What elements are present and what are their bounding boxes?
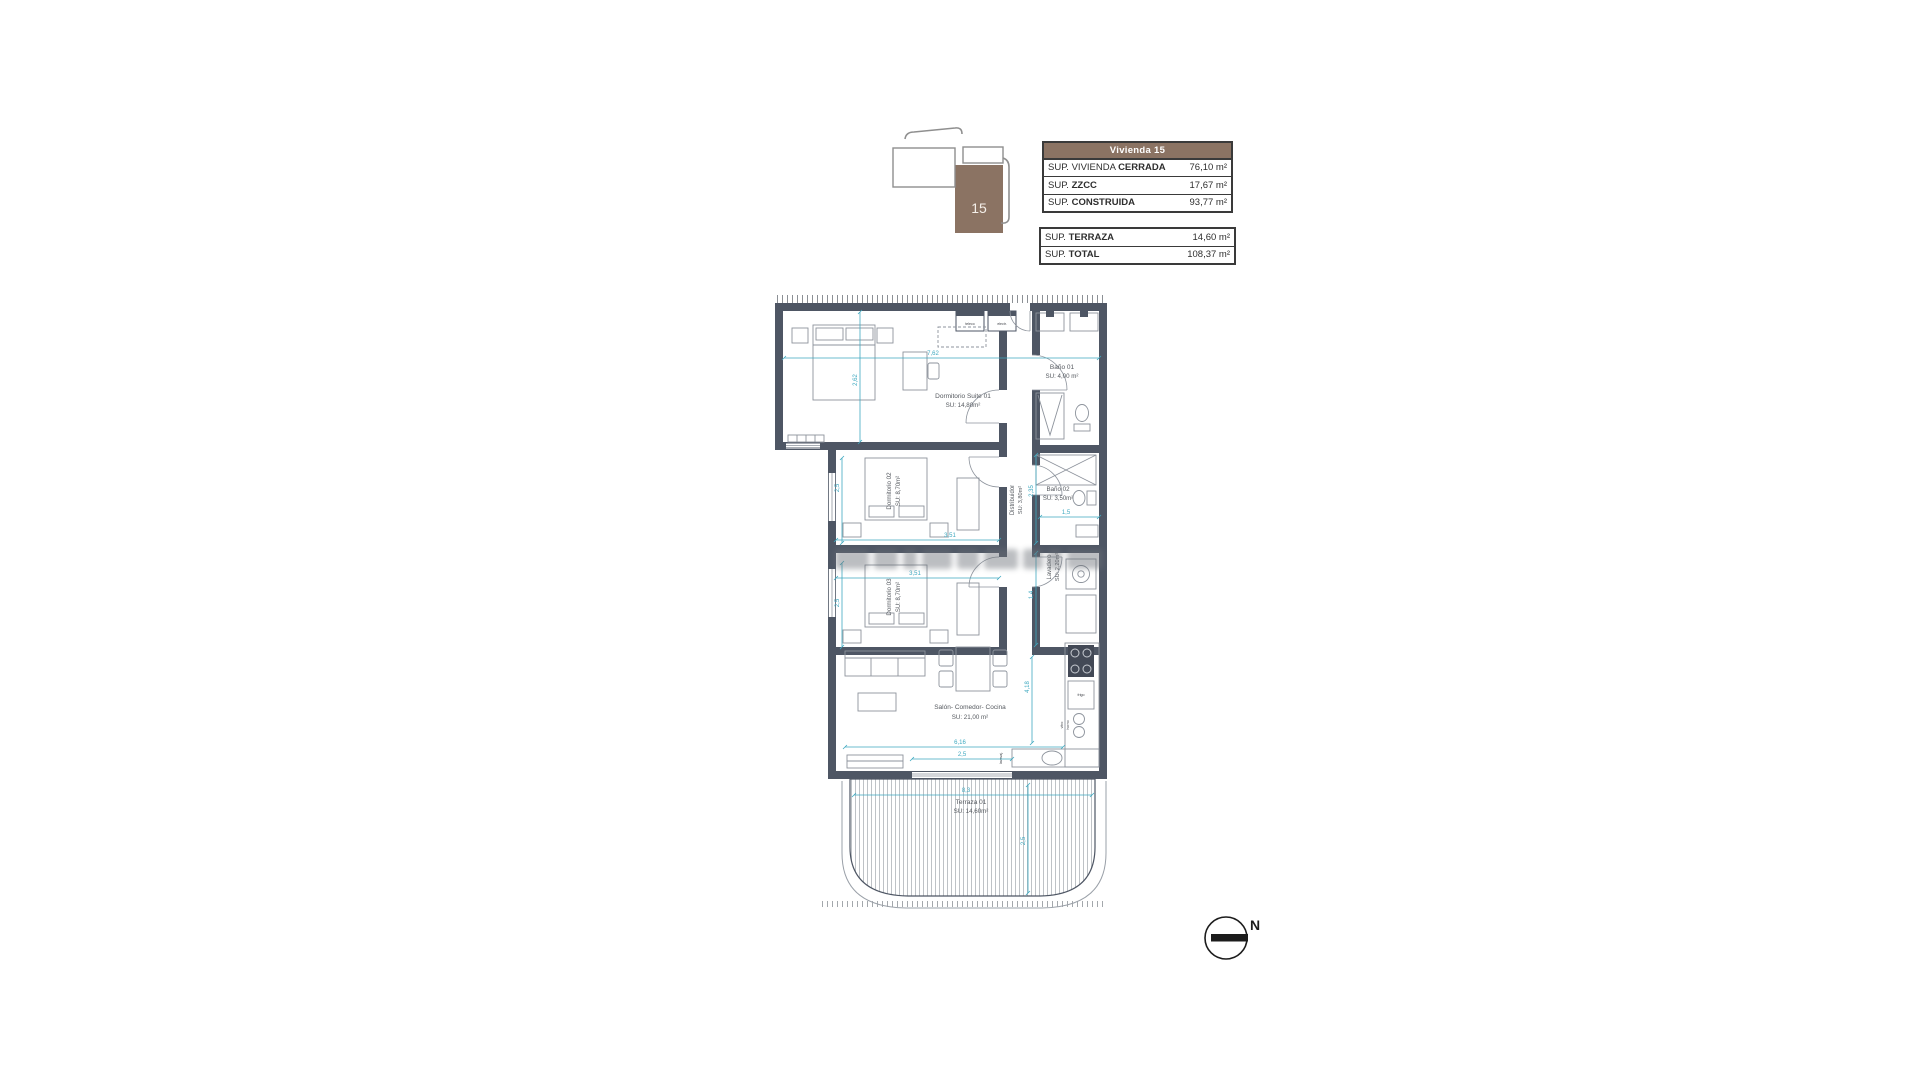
- terraza-decking: [850, 779, 1095, 896]
- area-table-secondary: SUP. TERRAZA 14,60 m² SUP. TOTAL 108,37 …: [1039, 227, 1236, 265]
- row-value: 76,10 m²: [1190, 163, 1228, 173]
- room-area-label: SU: 8,70m²: [896, 582, 902, 612]
- utility-boxes: teleco electr.: [956, 311, 1016, 331]
- row-value: 108,37 m²: [1187, 250, 1230, 260]
- row-label: SUP. VIVIENDA CERRADA: [1048, 163, 1166, 173]
- dim-label: 2,62: [853, 374, 859, 386]
- vitro-tag: vitro: [1060, 722, 1064, 729]
- suite-furniture: [788, 325, 986, 442]
- dim-label: 7,62: [927, 351, 939, 357]
- row-label: SUP. CONSTRUIDA: [1048, 198, 1135, 208]
- dim-label: 2,5: [958, 752, 967, 758]
- room-label: Baño 02: [1046, 486, 1070, 493]
- table-row: SUP. TERRAZA 14,60 m²: [1041, 229, 1234, 246]
- dim-label: 1,5: [1062, 510, 1071, 516]
- room-label: Baño 01: [1050, 364, 1075, 371]
- room-label: Dormitorio Suite 01: [935, 393, 991, 400]
- row-label: SUP. TOTAL: [1045, 250, 1099, 260]
- key-plan-unit-number: 15: [971, 200, 987, 216]
- dim-label: 2,35: [1029, 485, 1035, 497]
- horno-tag: horno: [1066, 720, 1070, 729]
- compass-needle: [1211, 934, 1248, 942]
- key-plan-outline: [905, 128, 962, 139]
- row-label: SUP. ZZCC: [1048, 181, 1097, 191]
- floor-plan: Terraza 01 SU: 14,60m²: [770, 295, 1115, 915]
- north-compass-icon: N: [1196, 904, 1271, 969]
- dim-label: 1,4: [1029, 590, 1035, 599]
- dim-label: 8,3: [962, 788, 971, 794]
- room-label: Dormitorio 03: [886, 578, 893, 616]
- dim-label: 2,5: [835, 598, 841, 607]
- table-row: SUP. VIVIENDA CERRADA 76,10 m²: [1044, 160, 1231, 177]
- table-row: SUP. TOTAL 108,37 m²: [1041, 246, 1234, 264]
- dim-label: 3,51: [944, 533, 956, 539]
- area-table-header: Vivienda 15: [1044, 143, 1231, 160]
- compass-north-label: N: [1250, 917, 1260, 933]
- room-label: Distribuidor: [1010, 485, 1016, 515]
- key-plan-neighbor-a: [893, 148, 955, 187]
- room-area-label: SU: 21,00 m²: [952, 714, 988, 721]
- party-wall-hatch-top: [775, 295, 1107, 303]
- row-label: SUP. TERRAZA: [1045, 233, 1114, 243]
- room-area-label: SU: 3,50m²: [1043, 496, 1073, 502]
- room-labels: Dormitorio Suite 01 SU: 14,80m² Baño 01 …: [886, 364, 1079, 721]
- room-label: Terraza 01: [956, 799, 987, 806]
- room-terraza: Terraza 01 SU: 14,60m²: [842, 779, 1106, 908]
- room-area-label: SU: 4,00 m²: [1045, 373, 1078, 380]
- teleco-tag: teleco: [965, 322, 974, 326]
- dim-label: 6,16: [954, 740, 966, 746]
- key-plan-unit-block: [955, 165, 1003, 233]
- dim-label: 2,5: [1021, 836, 1027, 845]
- room-label: Salón- Comedor- Cocina: [934, 704, 1006, 711]
- row-value: 17,67 m²: [1190, 181, 1228, 191]
- row-value: 14,60 m²: [1193, 233, 1231, 243]
- key-plan-neighbor-b: [963, 147, 1003, 163]
- dim-label: 4,18: [1025, 681, 1031, 693]
- room-area-label: SU: 3,80m²: [1018, 486, 1024, 514]
- dim-label: 2,5: [835, 483, 841, 492]
- watermark: [835, 547, 1111, 571]
- lavavajillas-tag: lavavaj.: [999, 752, 1003, 764]
- kitchen-hob: [1068, 645, 1094, 677]
- area-table-main: Vivienda 15 SUP. VIVIENDA CERRADA 76,10 …: [1042, 141, 1233, 213]
- frigo-tag: frigo: [1078, 693, 1085, 697]
- dorm2-furniture: [843, 458, 979, 537]
- key-plan: 15: [885, 112, 1020, 242]
- room-area-label: SU: 14,80m²: [946, 402, 981, 409]
- dim-label: 3,51: [909, 571, 921, 577]
- room-area-label: SU: 14,60m²: [954, 808, 989, 815]
- table-row: SUP. ZZCC 17,67 m²: [1044, 176, 1231, 194]
- room-area-label: SU: 8,70m²: [896, 476, 902, 506]
- table-row: SUP. CONSTRUIDA 93,77 m²: [1044, 194, 1231, 212]
- row-value: 93,77 m²: [1190, 198, 1228, 208]
- room-label: Dormitorio 02: [886, 472, 893, 510]
- electr-tag: electr.: [997, 322, 1006, 326]
